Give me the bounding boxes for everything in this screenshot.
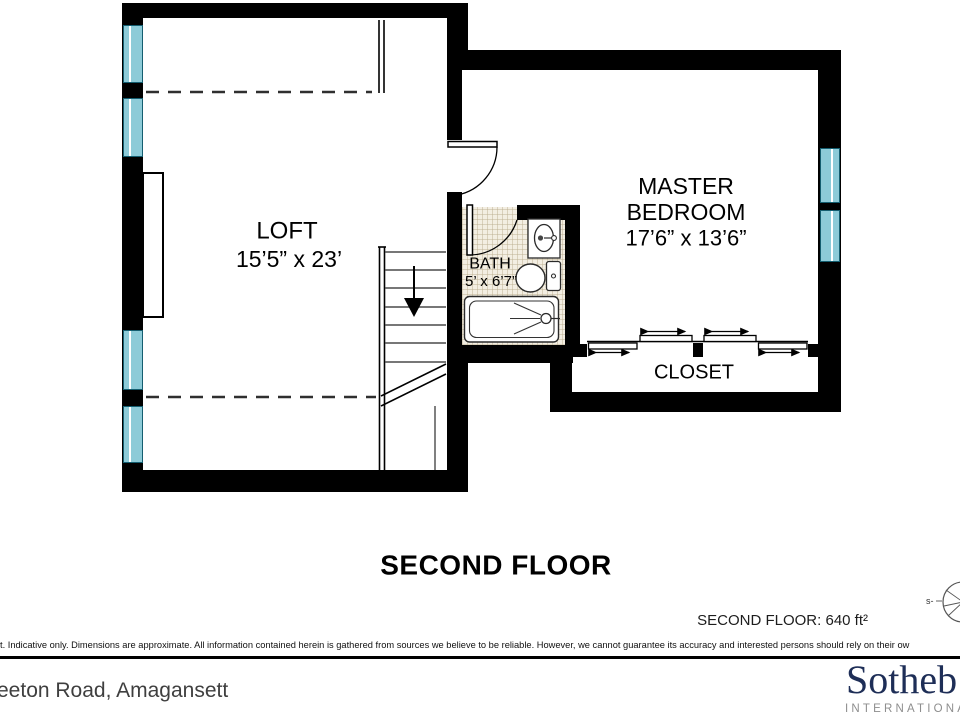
- window-symbol: [123, 98, 143, 157]
- bath-label: BATH: [469, 257, 510, 274]
- window-glass-line: [129, 99, 131, 156]
- stair-break-line: [381, 364, 446, 406]
- window-symbol: [123, 330, 143, 390]
- wall-segment: [808, 344, 825, 357]
- loft-builtin: [142, 172, 164, 318]
- wall-segment: [122, 3, 468, 18]
- stairs-down-arrow-icon: [404, 266, 424, 317]
- loft-dimensions: 15’5” x 23’: [236, 247, 342, 271]
- window-glass-line: [129, 26, 131, 82]
- floor-area-note: SECOND FLOOR: 640 ft²: [697, 612, 868, 629]
- window-symbol: [123, 406, 143, 463]
- wall-segment: [447, 345, 468, 470]
- wall-segment: [122, 470, 468, 492]
- window-glass-line: [129, 331, 131, 389]
- loft-label: LOFT: [256, 218, 317, 243]
- window-symbol: [820, 210, 840, 262]
- wall-segment: [550, 363, 572, 412]
- slider-panel: [704, 336, 756, 342]
- master-door: [448, 142, 497, 196]
- slider-panel: [640, 336, 692, 342]
- bath-dimensions: 5’ x 6’7”: [465, 274, 517, 290]
- brand-logo: Sotheb: [846, 656, 960, 703]
- closet-label: CLOSET: [654, 363, 734, 384]
- master-label-line1: MASTER: [638, 174, 734, 198]
- window-symbol: [820, 148, 840, 203]
- master-label-line2: BEDROOM: [627, 200, 746, 224]
- footer-divider: [0, 656, 960, 659]
- window-glass-line: [129, 407, 131, 462]
- floor-title: SECOND FLOOR: [380, 550, 612, 579]
- floorplan-page: s- LOFT 15’5” x 23’ MASTER BEDROOM 17’6”…: [0, 0, 960, 720]
- wall-segment: [447, 192, 462, 345]
- wall-segment: [517, 205, 565, 220]
- door-arc: [457, 147, 497, 195]
- stairwell-upper-rail: [379, 20, 384, 93]
- wall-segment: [572, 344, 587, 357]
- master-dimensions: 17’6” x 13’6”: [625, 226, 746, 249]
- wall-segment: [447, 70, 462, 140]
- property-address: eeton Road, Amagansett: [0, 679, 228, 703]
- stair-treads: [385, 252, 446, 362]
- compass-label: s-: [926, 596, 934, 606]
- wall-segment: [550, 392, 841, 412]
- slider-panel: [589, 343, 638, 349]
- slider-panel: [759, 343, 808, 349]
- wall-segment: [447, 50, 841, 70]
- brand-subtitle: INTERNATIONAL: [845, 703, 960, 715]
- window-glass-line: [831, 211, 833, 261]
- closet-door-post: [693, 343, 703, 357]
- compass-icon: s-: [926, 582, 960, 622]
- stairs: [378, 247, 446, 470]
- wall-segment: [565, 205, 580, 345]
- disclaimer-text: t. Indicative only. Dimensions are appro…: [0, 640, 960, 650]
- door-leaf: [448, 142, 497, 148]
- window-glass-line: [831, 149, 833, 202]
- window-symbol: [123, 25, 143, 83]
